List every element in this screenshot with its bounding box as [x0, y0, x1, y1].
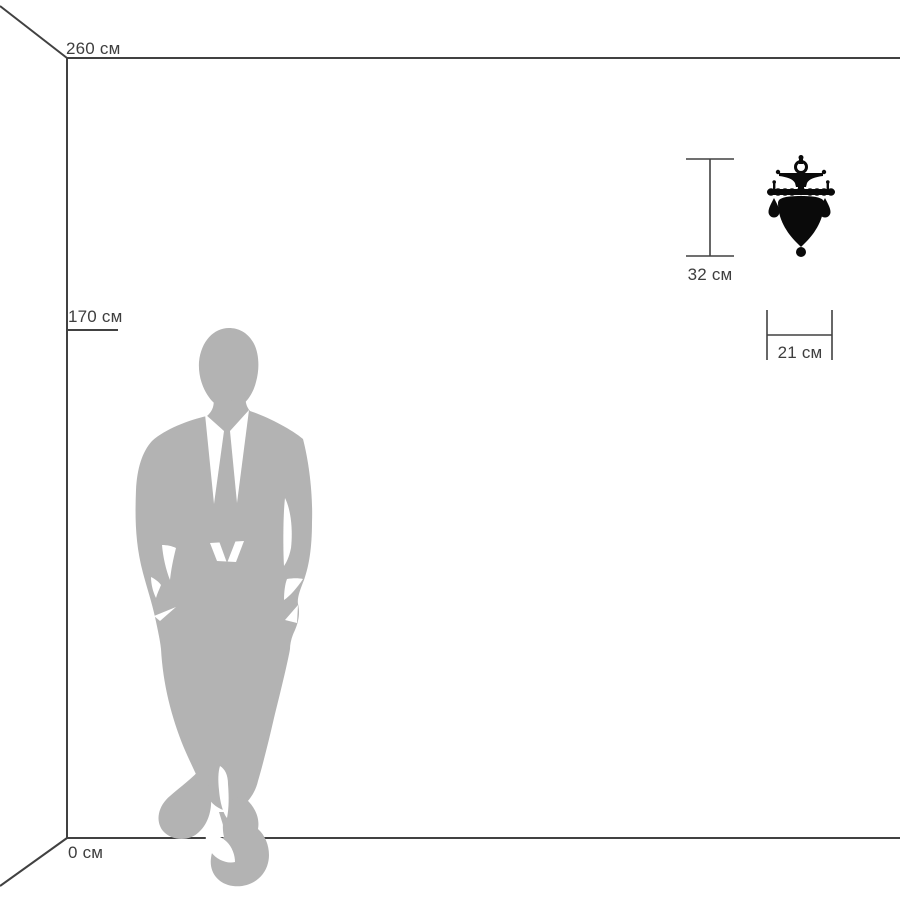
sconce-bead [788, 188, 796, 196]
ceiling-height-label: 260 см [66, 40, 120, 59]
product-height-label: 32 см [688, 266, 733, 285]
floor-corner-diagonal [0, 838, 67, 886]
sconce-pin-ball-left [772, 180, 776, 184]
sconce-bobeche-tip-right [822, 170, 826, 174]
floor-label: 0 см [68, 844, 103, 863]
diagram-canvas [0, 0, 900, 900]
man-silhouette [136, 328, 313, 886]
man-head [199, 328, 259, 409]
sconce-bottom-ball [796, 247, 806, 257]
sconce-bead [806, 188, 814, 196]
sconce-pendant-left [769, 198, 780, 218]
sconce-bead [781, 188, 789, 196]
sconce-pin-ball-right [826, 180, 830, 184]
ceiling-corner-diagonal [0, 6, 67, 58]
room-outline [0, 6, 900, 886]
sconce-body [778, 196, 824, 247]
sconce-bobeche-tip-left [776, 170, 780, 174]
sconce-pin-right [827, 183, 829, 190]
sconce-bead [797, 187, 805, 195]
man-body [136, 395, 313, 811]
sconce-bobeche [779, 173, 823, 187]
product-width-label: 21 см [778, 344, 823, 363]
person-height-label: 170 см [68, 308, 122, 327]
wall-sconce-icon [767, 155, 835, 257]
height-dimension-lines [686, 159, 734, 256]
sconce-bead [813, 188, 821, 196]
scale-diagram: 260 см 170 см 0 см 32 см 21 см [0, 0, 900, 900]
sconce-pin-left [773, 183, 775, 190]
man-shoe-left [159, 768, 212, 839]
